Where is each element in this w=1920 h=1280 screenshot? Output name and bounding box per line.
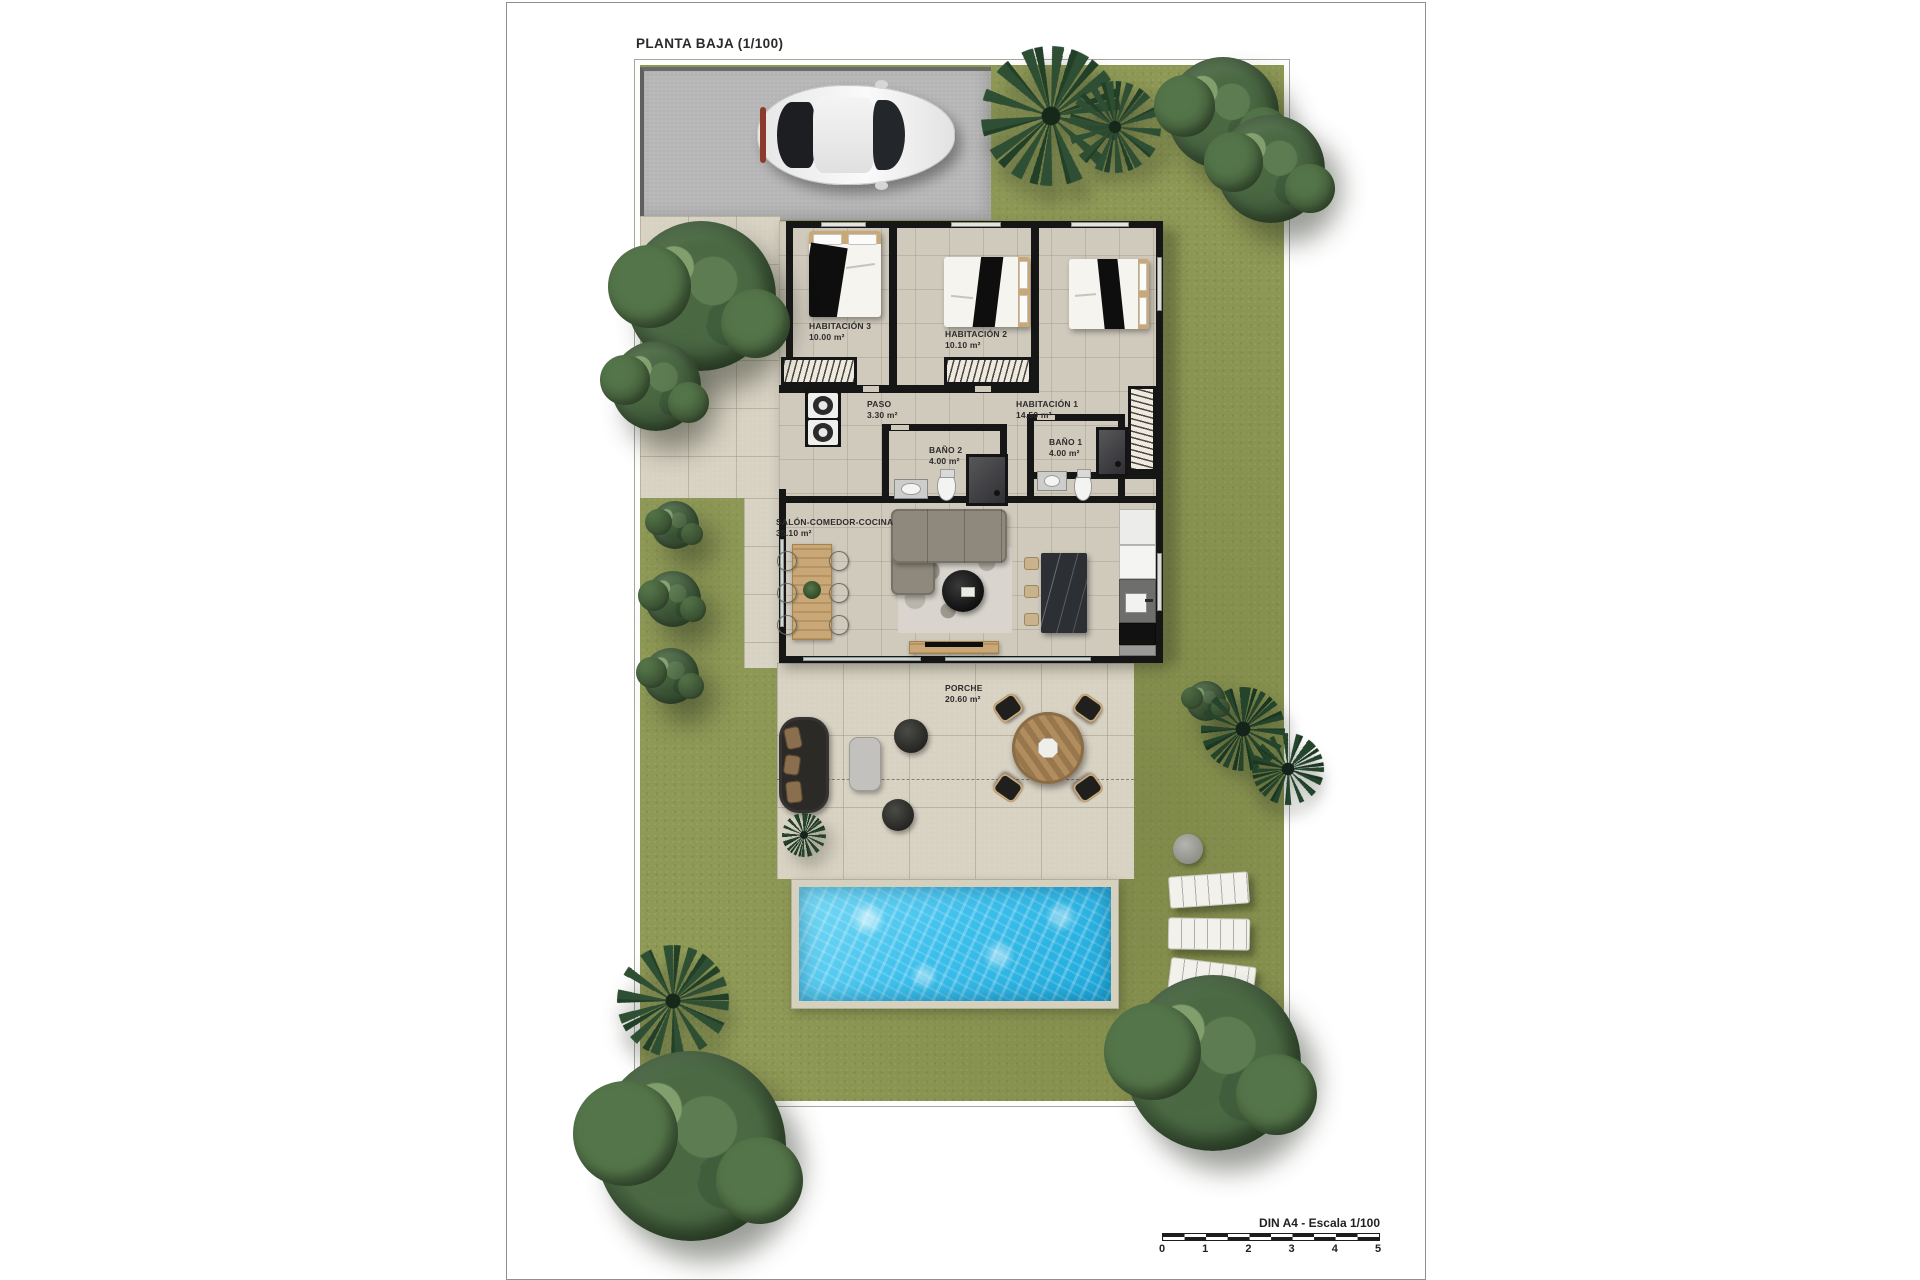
kitchen-cabinet	[1119, 545, 1156, 579]
dining-chair	[777, 551, 797, 571]
washing-machine-2	[808, 420, 838, 445]
wardrobe-bedroom3	[781, 357, 857, 385]
coffee-table-book	[961, 587, 975, 597]
garden-plot: HABITACIÓN 310.00 m² HABITACIÓN 210.10 m…	[640, 65, 1284, 1101]
table-plant	[803, 581, 821, 599]
glass-door-south-2	[945, 657, 1091, 661]
wall-bath2-west	[882, 424, 889, 503]
wardrobe-bedroom1	[1128, 386, 1156, 472]
scale-ruler	[1162, 1233, 1380, 1241]
utility-closet	[805, 389, 841, 447]
window-bedroom1	[1071, 222, 1129, 227]
pool-water	[799, 887, 1111, 1001]
bush	[643, 648, 699, 704]
fridge	[1119, 509, 1156, 545]
room-label-bano-1: BAÑO 14.00 m²	[1049, 437, 1082, 459]
bedroom3-bed	[809, 231, 881, 317]
bath1-shower	[1096, 427, 1128, 477]
room-label-paso: PASO3.30 m²	[867, 399, 898, 421]
house	[779, 221, 1163, 663]
dining-chair	[777, 615, 797, 635]
scale-tick: 1	[1202, 1243, 1208, 1255]
bedroom1-bed	[1069, 259, 1149, 329]
window-bedroom3	[821, 222, 866, 227]
kitchen-base-unit	[1119, 645, 1156, 656]
car-roof	[813, 97, 875, 173]
tree	[596, 1051, 786, 1241]
bath1-sink	[1037, 471, 1067, 491]
wall-bed2-bed1	[1031, 221, 1039, 385]
wall-bath1-west	[1027, 414, 1034, 503]
kitchen-counter	[1119, 579, 1156, 623]
car-mirror-top	[875, 80, 888, 89]
sofa	[891, 509, 1007, 563]
kitchen-island	[1041, 553, 1087, 633]
window-bedroom2	[951, 222, 1001, 227]
scale-tick: 5	[1375, 1243, 1381, 1255]
car-windshield	[873, 100, 905, 170]
porch-pouf	[882, 799, 914, 831]
scale-label: DIN A4 - Escala 1/100	[1162, 1216, 1380, 1230]
dining-chair	[829, 551, 849, 571]
window-east-bedroom1	[1157, 257, 1162, 311]
oven	[1119, 623, 1156, 645]
room-label-habitacion-1: HABITACIÓN 114.50 m²	[1016, 399, 1078, 421]
dining-chair	[777, 583, 797, 603]
car	[757, 85, 955, 185]
dining-chair	[829, 583, 849, 603]
washing-machine-1	[808, 393, 838, 418]
door-gap-bath2	[891, 425, 909, 430]
bush	[651, 501, 699, 549]
door-gap-bedroom3	[863, 386, 879, 392]
porch-fern	[782, 813, 826, 857]
scale-bar: DIN A4 - Escala 1/100 0 1 2 3 4 5	[1162, 1216, 1380, 1257]
car-rear-window	[777, 102, 815, 168]
scale-ticks: 0 1 2 3 4 5	[1162, 1243, 1380, 1257]
tree	[1125, 975, 1301, 1151]
sun-lounger	[1168, 871, 1250, 909]
room-label-habitacion-3: HABITACIÓN 310.00 m²	[809, 321, 871, 343]
room-label-porche: PORCHE20.60 m²	[945, 683, 983, 705]
scale-tick: 4	[1332, 1243, 1338, 1255]
bush	[645, 571, 701, 627]
bar-stool	[1024, 557, 1039, 570]
pool	[791, 879, 1119, 1009]
bath1-toilet	[1074, 473, 1092, 501]
door-gap-bedroom2	[975, 386, 991, 392]
tree	[611, 341, 701, 431]
window-east-kitchen	[1157, 553, 1162, 611]
room-label-bano-2: BAÑO 24.00 m²	[929, 445, 962, 467]
glass-door-south-1	[803, 657, 921, 661]
porch-coffee-table	[849, 737, 881, 791]
house-shadow	[1165, 231, 1179, 663]
room-label-habitacion-2: HABITACIÓN 210.10 m²	[945, 329, 1007, 351]
scale-ruler-row	[1163, 1237, 1379, 1240]
tv	[925, 642, 983, 647]
bar-stool	[1024, 585, 1039, 598]
table-centerpiece	[1038, 738, 1058, 758]
sun-lounger	[1168, 917, 1251, 950]
car-mirror-bottom	[875, 181, 888, 190]
bath2-shower	[966, 454, 1008, 506]
plan-frame: HABITACIÓN 310.00 m² HABITACIÓN 210.10 m…	[634, 59, 1290, 1107]
bath2-sink	[894, 479, 928, 499]
bath2-toilet	[937, 473, 956, 501]
outdoor-sofa	[779, 717, 829, 813]
scale-tick: 2	[1245, 1243, 1251, 1255]
dining-chair	[829, 615, 849, 635]
bar-stool	[1024, 613, 1039, 626]
room-label-salon: SALÓN-COMEDOR-COCINA35.10 m²	[776, 517, 893, 539]
drawing-sheet: PLANTA BAJA (1/100)	[506, 2, 1426, 1280]
kitchen-faucet	[1145, 599, 1153, 602]
wall-bed3-bed2	[889, 221, 897, 385]
kitchen-sink	[1125, 593, 1147, 613]
scale-tick: 0	[1159, 1243, 1165, 1255]
tree	[1217, 115, 1325, 223]
porch-pouf	[894, 719, 928, 753]
scale-tick: 3	[1289, 1243, 1295, 1255]
car-taillight	[760, 107, 766, 163]
wardrobe-bedroom2	[944, 357, 1032, 385]
bedroom2-bed	[944, 257, 1030, 327]
plan-title: PLANTA BAJA (1/100)	[636, 36, 783, 51]
side-table	[1173, 834, 1203, 864]
